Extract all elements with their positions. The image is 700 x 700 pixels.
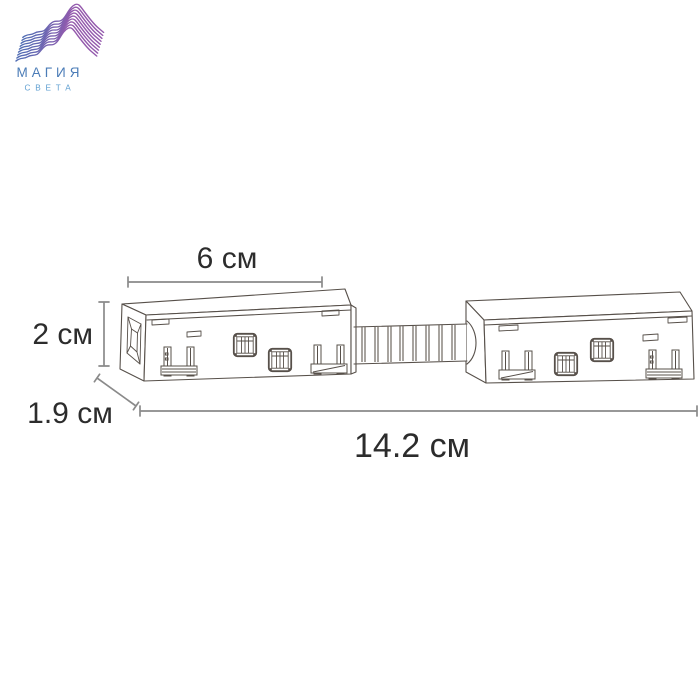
square-grommet-icon [234,334,256,356]
connector-right-block [466,292,694,383]
brand-subtitle: СВЕТА [24,84,75,93]
connector-left-block [120,289,356,381]
square-grommet-icon [591,339,613,361]
left-block-side-face [120,304,146,381]
dim-overall-length: 14.2 см [140,406,697,465]
dim-block-width: 6 см [128,242,322,287]
square-grommet-icon [555,353,577,375]
brand-logo: МАГИЯ СВЕТА [16,4,104,92]
dim-block-depth: 1.9 см [27,374,138,430]
brand-title: МАГИЯ [16,65,83,80]
product-image-canvas: МАГИЯ СВЕТА [0,0,700,700]
flex-tube [354,321,476,364]
flex-tube-body [357,324,466,364]
dim-overall-length-label: 14.2 см [354,427,470,465]
dimension-drawing: 6 см 2 см 1.9 см 14.2 см [27,242,697,465]
square-grommet-icon [269,349,291,371]
dim-block-depth-label: 1.9 см [27,397,113,430]
dim-block-height: 2 см [32,302,109,366]
dim-block-width-label: 6 см [197,242,258,275]
dim-block-height-label: 2 см [32,318,93,351]
logo-wave-mark-icon [16,4,104,61]
